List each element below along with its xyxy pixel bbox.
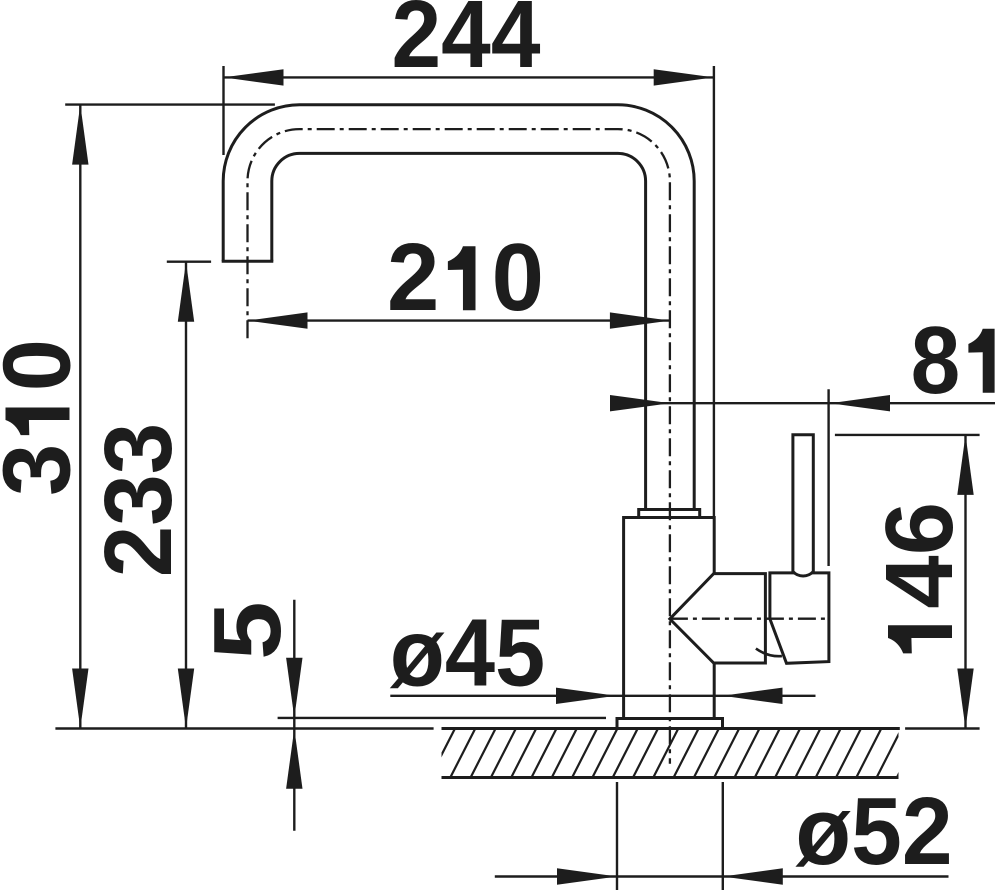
svg-text:5: 5: [194, 601, 301, 660]
svg-text:4: 4: [866, 555, 973, 608]
svg-text:ø45: ø45: [390, 599, 545, 706]
svg-text:2: 2: [387, 224, 439, 331]
svg-text:ø52: ø52: [795, 777, 952, 885]
svg-text:244: 244: [392, 0, 541, 88]
svg-text:6: 6: [866, 502, 973, 555]
svg-text:0: 0: [492, 224, 544, 331]
svg-text:0: 0: [0, 339, 91, 391]
svg-text:8: 8: [911, 306, 961, 414]
svg-text:3: 3: [0, 444, 91, 496]
svg-text:233: 233: [85, 423, 192, 578]
